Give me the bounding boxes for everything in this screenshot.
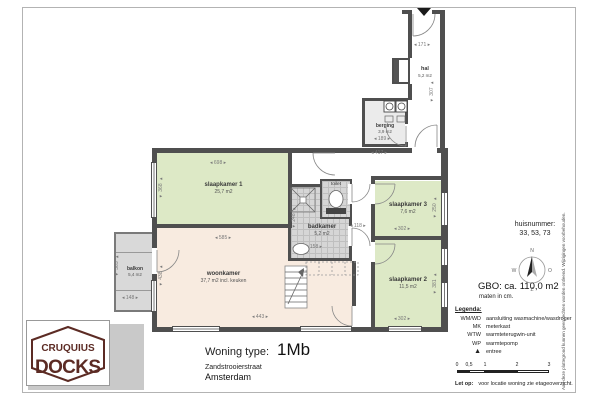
logo-line1: CRUQUIUS bbox=[41, 343, 95, 354]
scale-bar-segment bbox=[485, 370, 517, 373]
washer-dryer-icon bbox=[384, 101, 407, 122]
units-note: maten in cm. bbox=[479, 294, 513, 300]
scale-tick: 0 bbox=[456, 362, 459, 368]
kitchen-outline bbox=[306, 262, 358, 275]
note: Let op: voor locatie woning zie etageove… bbox=[455, 381, 573, 387]
scale-bar: 0 0,5 1 2 3 bbox=[455, 362, 551, 378]
washbasin-icon bbox=[293, 244, 309, 255]
disclaimer-text: Aan deze plattegrond kunnen geen rechten… bbox=[561, 150, 566, 390]
note-text: voor locatie woning zie etageoverzicht. bbox=[478, 381, 572, 387]
legend-item: WM/WD aansluiting wasmachine/wasdroger bbox=[455, 316, 573, 322]
huisnummer-block: huisnummer: 33, 53, 73 bbox=[490, 220, 580, 238]
legend-item: MK meterkast bbox=[455, 324, 573, 330]
woning-type-label: Woning type: bbox=[205, 346, 269, 358]
legend-item-entree: ▲ entree bbox=[455, 349, 573, 355]
floorplan-sheet: slaapkamer 1 25,7 m2 woonkamer 37,7 m2 i… bbox=[0, 0, 600, 400]
toilet-icon bbox=[326, 191, 346, 215]
note-label: Let op: bbox=[455, 381, 473, 387]
legend-item: WTW warmteterugwin-unit bbox=[455, 332, 573, 338]
huisnummer-values: 33, 53, 73 bbox=[490, 229, 580, 238]
logo-graphic: CRUQUIUS DOCKS bbox=[27, 321, 109, 385]
compass-w: W bbox=[512, 268, 517, 274]
scale-tick: 1 bbox=[484, 362, 487, 368]
legend-heading: Legenda: bbox=[455, 307, 573, 313]
cruquius-docks-logo: CRUQUIUS DOCKS bbox=[26, 320, 110, 386]
scale-bar-segment bbox=[457, 370, 469, 373]
compass-n: N bbox=[530, 248, 534, 254]
scale-bar-segment bbox=[469, 370, 485, 373]
compass-e: O bbox=[548, 268, 552, 274]
scale-tick: 2 bbox=[516, 362, 519, 368]
gbo-label: GBO: ca. 110,0 m2 bbox=[478, 281, 559, 292]
logo-line2: DOCKS bbox=[35, 357, 101, 378]
city: Amsterdam bbox=[205, 372, 310, 382]
legend-item: WP warmtepomp bbox=[455, 341, 573, 347]
woning-type-value: 1Mb bbox=[277, 340, 310, 360]
huisnummer-label: huisnummer: bbox=[490, 220, 580, 229]
stairs-icon bbox=[285, 266, 307, 308]
scale-tick: 3 bbox=[548, 362, 551, 368]
scale-bar-segment bbox=[517, 370, 549, 373]
scale-tick: 0,5 bbox=[466, 362, 473, 368]
entree-arrow-icon bbox=[417, 8, 431, 16]
entree-triangle-icon: ▲ bbox=[455, 349, 481, 355]
legend: Legenda: WM/WD aansluiting wasmachine/wa… bbox=[455, 307, 573, 357]
shower-icon bbox=[291, 188, 315, 212]
title-block: Woning type: 1Mb Zandstrooierstraat Amst… bbox=[205, 340, 310, 382]
street: Zandstrooierstraat bbox=[205, 364, 310, 371]
